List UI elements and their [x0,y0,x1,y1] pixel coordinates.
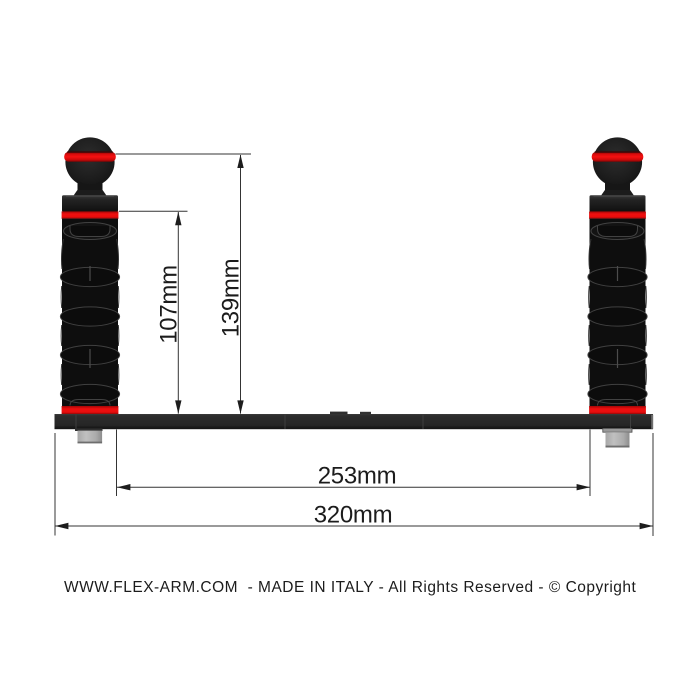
svg-text:320mm: 320mm [314,502,393,529]
svg-text:253mm: 253mm [318,462,397,489]
svg-text:139mm: 139mm [218,259,245,338]
svg-text:WWW.FLEX-ARM.COM - MADE IN IT: WWW.FLEX-ARM.COM - MADE IN ITALY - All R… [64,579,637,596]
svg-text:107mm: 107mm [156,265,183,344]
